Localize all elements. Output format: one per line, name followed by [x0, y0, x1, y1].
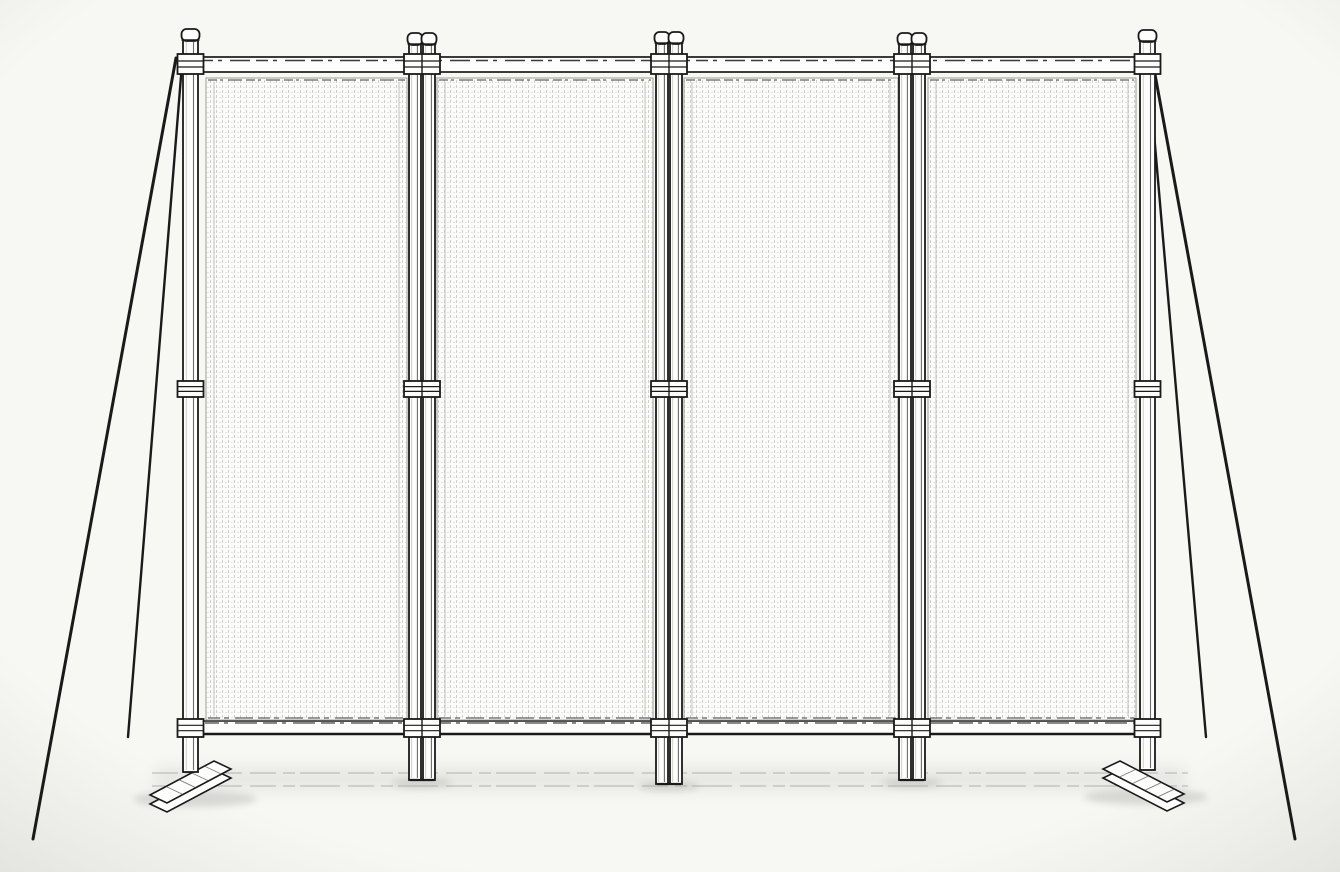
post-middle-1-front-cap [408, 33, 423, 45]
post-middle-1-back-tube [423, 43, 435, 780]
mesh-panel-2 [437, 78, 653, 720]
post-middle-3-front-tube [899, 43, 911, 780]
clamp-middle-3-row2 [894, 381, 930, 397]
clamp-left-end-row2-body [178, 381, 204, 397]
mesh-panel-3 [684, 78, 898, 720]
post-left-end-tube [183, 40, 198, 772]
clamp-left-end-row2 [178, 381, 204, 397]
clamp-right-end-row2 [1135, 381, 1161, 397]
clamp-middle-1-row1 [404, 54, 440, 74]
clamp-left-end-row1 [178, 54, 204, 74]
mesh-panel-1 [206, 78, 407, 720]
post-middle-3-back-tube [913, 43, 925, 780]
panel-fabric-3 [684, 78, 898, 720]
clamp-left-end-row3 [178, 719, 204, 737]
clamp-left-end-row3-body [178, 719, 204, 737]
clamp-right-end-row1-body [1135, 54, 1161, 74]
clamp-right-end-row2-body [1135, 381, 1161, 397]
clamp-right-end-row3-body [1135, 719, 1161, 737]
post-middle-3-back-cap [912, 33, 927, 45]
clamp-middle-3-row1 [894, 54, 930, 74]
clamp-middle-2-row3 [651, 719, 687, 737]
post-left-end [182, 29, 200, 772]
post-middle-2-back-cap [669, 32, 684, 44]
clamp-middle-2-row1 [651, 54, 687, 74]
post-middle-2-back-tube [670, 42, 682, 784]
privacy-screen-line-drawing [0, 0, 1340, 872]
clamp-middle-1-row3 [404, 719, 440, 737]
clamp-middle-2-row2 [651, 381, 687, 397]
post-right-end-tube [1140, 41, 1155, 770]
mesh-panel-4 [928, 78, 1136, 720]
clamp-right-end-row1 [1135, 54, 1161, 74]
clamp-middle-3-row3 [894, 719, 930, 737]
panel-fabric-1 [206, 78, 407, 720]
post-middle-1-front-tube [409, 43, 421, 780]
drawing-stage [0, 0, 1340, 872]
clamp-left-end-row1-body [178, 54, 204, 74]
post-middle-2-front-tube [656, 42, 668, 784]
post-right-end-cap [1139, 30, 1157, 42]
clamp-middle-1-row2 [404, 381, 440, 397]
post-middle-3-front-cap [898, 33, 913, 45]
clamp-right-end-row3 [1135, 719, 1161, 737]
post-left-end-cap [182, 29, 200, 41]
panel-fabric-2 [437, 78, 653, 720]
post-middle-2-front-cap [655, 32, 670, 44]
panel-fabric-4 [928, 78, 1136, 720]
post-middle-1-back-cap [422, 33, 437, 45]
post-right-end [1139, 30, 1157, 770]
